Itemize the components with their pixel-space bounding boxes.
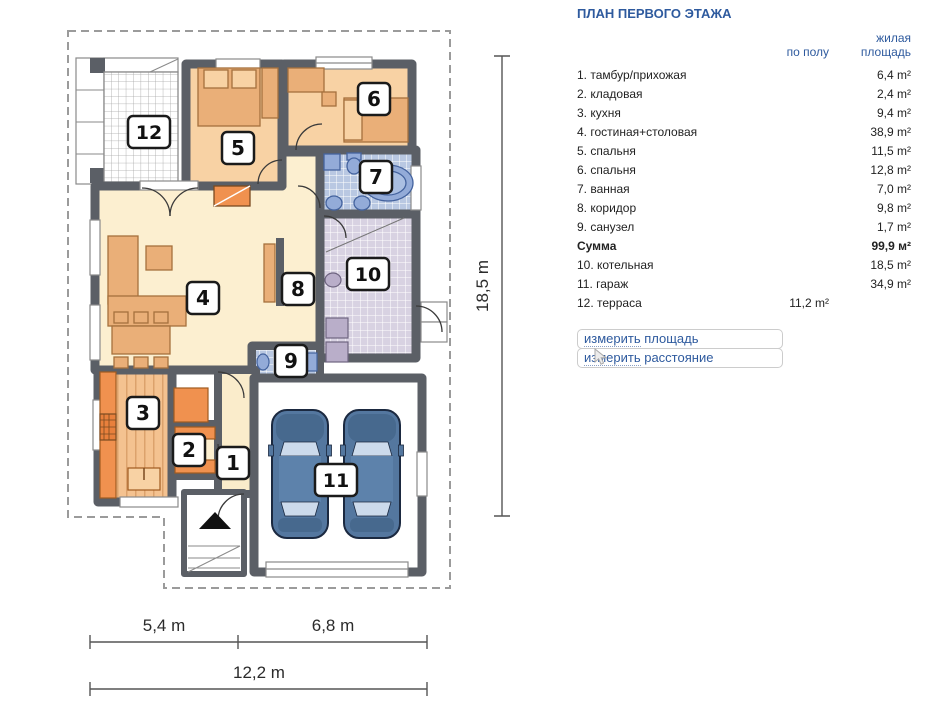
room-label-4: 4 bbox=[187, 282, 219, 314]
window bbox=[90, 220, 100, 275]
table-row: 9. санузел1,7 m² bbox=[577, 218, 911, 237]
table-header: по полу жилая площадь bbox=[577, 31, 911, 59]
room-row-living-area: 99,9 м² bbox=[829, 237, 911, 256]
table-row: 11. гараж34,9 m² bbox=[577, 275, 911, 294]
room-row-floor-area bbox=[745, 123, 829, 142]
panel-title: ПЛАН ПЕРВОГО ЭТАЖА bbox=[577, 6, 911, 21]
room-label-12: 12 bbox=[128, 116, 170, 148]
area-panel: ПЛАН ПЕРВОГО ЭТАЖА по полу жилая площадь… bbox=[577, 6, 911, 368]
table-row: 1. тамбур/прихожая6,4 m² bbox=[577, 66, 911, 85]
table-row: 12. терраса11,2 m² bbox=[577, 294, 911, 313]
svg-text:7: 7 bbox=[369, 165, 383, 189]
svg-text:4: 4 bbox=[196, 286, 210, 310]
svg-text:2: 2 bbox=[182, 438, 196, 462]
room-label-1: 1 bbox=[217, 447, 249, 479]
room-label-6: 6 bbox=[358, 83, 390, 115]
room-row-living-area: 6,4 m² bbox=[829, 66, 911, 85]
room-row-label: 5. спальня bbox=[577, 142, 745, 161]
svg-text:12: 12 bbox=[136, 122, 162, 144]
column-header-floor: по полу bbox=[745, 45, 829, 59]
room-row-label: 9. санузел bbox=[577, 218, 745, 237]
svg-text:9: 9 bbox=[284, 349, 298, 373]
room-row-living-area bbox=[829, 294, 911, 313]
table-row: 6. спальня12,8 m² bbox=[577, 161, 911, 180]
dimension-height-label: 18,5 m bbox=[473, 260, 492, 312]
mouse-cursor bbox=[594, 348, 608, 366]
room-row-floor-area bbox=[745, 237, 829, 256]
svg-text:6: 6 bbox=[367, 87, 381, 111]
dimension-right-label: 6,8 m bbox=[312, 616, 355, 635]
room-row-living-area: 34,9 m² bbox=[829, 275, 911, 294]
room-row-label: Сумма bbox=[577, 237, 745, 256]
table-row: 8. коридор9,8 m² bbox=[577, 199, 911, 218]
room-row-living-area: 7,0 m² bbox=[829, 180, 911, 199]
room-row-living-area: 18,5 m² bbox=[829, 256, 911, 275]
table-row: 3. кухня9,4 m² bbox=[577, 104, 911, 123]
entry-porch bbox=[184, 492, 244, 574]
measure-link-rest[interactable]: площадь bbox=[641, 331, 699, 346]
measure-link-rest[interactable]: расстояние bbox=[641, 350, 714, 365]
page: 1 2 3 4 5 6 7 8 9 10 11 12 18,5 m 5,4 m … bbox=[0, 0, 938, 722]
room-label-5: 5 bbox=[222, 132, 254, 164]
room-label-9: 9 bbox=[275, 345, 307, 377]
room-row-floor-area bbox=[745, 199, 829, 218]
table-row: Сумма99,9 м² bbox=[577, 237, 911, 256]
bed-double bbox=[198, 68, 278, 126]
table-row: 5. спальня11,5 m² bbox=[577, 142, 911, 161]
room-row-label: 8. коридор bbox=[577, 199, 745, 218]
room-row-floor-area bbox=[745, 104, 829, 123]
area-table: 1. тамбур/прихожая6,4 m²2. кладовая2,4 m… bbox=[577, 66, 911, 313]
room-row-floor-area bbox=[745, 161, 829, 180]
room-row-living-area: 9,4 m² bbox=[829, 104, 911, 123]
room-label-10: 10 bbox=[347, 258, 389, 290]
table-row: 4. гостиная+столовая38,9 m² bbox=[577, 123, 911, 142]
room-row-living-area: 9,8 m² bbox=[829, 199, 911, 218]
room-row-label: 2. кладовая bbox=[577, 85, 745, 104]
room-row-living-area: 11,5 m² bbox=[829, 142, 911, 161]
room-row-floor-area: 11,2 m² bbox=[745, 294, 829, 313]
room-row-floor-area bbox=[745, 180, 829, 199]
room-row-floor-area bbox=[745, 256, 829, 275]
room-row-label: 12. терраса bbox=[577, 294, 745, 313]
room-row-floor-area bbox=[745, 66, 829, 85]
room-row-label: 1. тамбур/прихожая bbox=[577, 66, 745, 85]
window bbox=[90, 305, 100, 360]
room-label-7: 7 bbox=[360, 161, 392, 193]
svg-text:1: 1 bbox=[226, 451, 240, 475]
room-label-2: 2 bbox=[173, 434, 205, 466]
room-row-floor-area bbox=[745, 275, 829, 294]
measure-link-word[interactable]: измерить bbox=[584, 350, 641, 366]
exterior-step bbox=[421, 302, 447, 322]
measure-link-word[interactable]: измерить bbox=[584, 331, 641, 347]
svg-text:8: 8 bbox=[291, 277, 305, 301]
svg-text:3: 3 bbox=[136, 401, 150, 425]
room-row-label: 7. ванная bbox=[577, 180, 745, 199]
room-row-label: 3. кухня bbox=[577, 104, 745, 123]
room-row-label: 11. гараж bbox=[577, 275, 745, 294]
table-row: 2. кладовая2,4 m² bbox=[577, 85, 911, 104]
floor-plan: 1 2 3 4 5 6 7 8 9 10 11 12 18,5 m 5,4 m … bbox=[0, 0, 560, 722]
dimension-total-label: 12,2 m bbox=[233, 663, 285, 682]
table-row: 7. ванная7,0 m² bbox=[577, 180, 911, 199]
svg-text:11: 11 bbox=[323, 470, 349, 492]
room-row-floor-area bbox=[745, 142, 829, 161]
svg-text:5: 5 bbox=[231, 136, 245, 160]
room-label-11: 11 bbox=[315, 464, 357, 496]
room-label-3: 3 bbox=[127, 397, 159, 429]
room-label-8: 8 bbox=[282, 273, 314, 305]
room-row-living-area: 38,9 m² bbox=[829, 123, 911, 142]
room-row-living-area: 12,8 m² bbox=[829, 161, 911, 180]
exterior-step bbox=[421, 322, 447, 342]
room-row-living-area: 1,7 m² bbox=[829, 218, 911, 237]
measure-link[interactable]: измерить площадь bbox=[577, 329, 783, 349]
svg-text:10: 10 bbox=[355, 264, 381, 286]
fireplace bbox=[214, 186, 250, 206]
room-row-label: 6. спальня bbox=[577, 161, 745, 180]
room-row-floor-area bbox=[745, 85, 829, 104]
window bbox=[120, 497, 178, 507]
room-row-floor-area bbox=[745, 218, 829, 237]
room-row-living-area: 2,4 m² bbox=[829, 85, 911, 104]
room-row-label: 4. гостиная+столовая bbox=[577, 123, 745, 142]
table-row: 10. котельная18,5 m² bbox=[577, 256, 911, 275]
window bbox=[417, 452, 427, 496]
dimension-left-label: 5,4 m bbox=[143, 616, 186, 635]
room-row-label: 10. котельная bbox=[577, 256, 745, 275]
column-header-living: жилая площадь bbox=[829, 31, 911, 59]
dining-table bbox=[112, 312, 170, 368]
